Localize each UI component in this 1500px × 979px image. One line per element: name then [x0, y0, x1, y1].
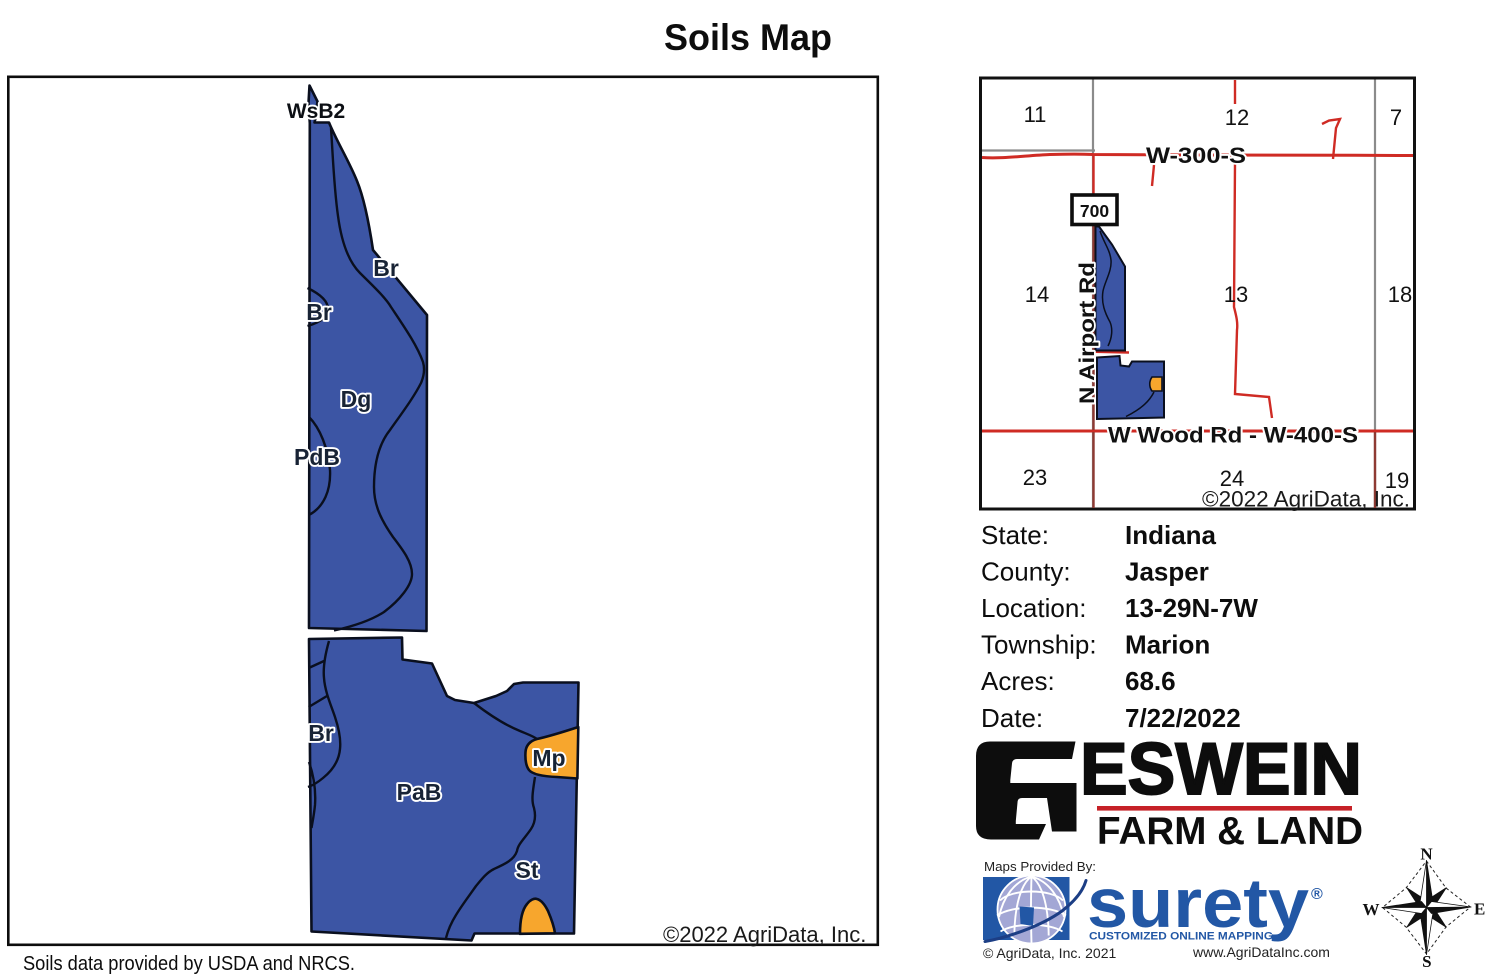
svg-text:Dg: Dg — [341, 386, 372, 412]
svg-text:WsB2: WsB2 — [287, 100, 345, 123]
svg-text:PdB: PdB — [294, 444, 340, 470]
svg-text:11: 11 — [1024, 102, 1047, 127]
svg-text:www.AgriDataInc.com: www.AgriDataInc.com — [1192, 944, 1330, 960]
svg-text:Br: Br — [308, 720, 334, 746]
svg-text:Acres:: Acres: — [981, 666, 1055, 696]
svg-text:E: E — [1474, 900, 1485, 919]
svg-text:7: 7 — [1390, 105, 1402, 130]
svg-text:N: N — [1420, 845, 1433, 864]
svg-text:14: 14 — [1025, 282, 1049, 307]
svg-text:St: St — [516, 857, 539, 883]
svg-text:Br: Br — [306, 299, 332, 325]
svg-text:18: 18 — [1388, 282, 1412, 307]
svg-text:Date:: Date: — [981, 703, 1043, 733]
svg-text:13-29N-7W: 13-29N-7W — [1125, 593, 1258, 623]
svg-text:© AgriData, Inc. 2021: © AgriData, Inc. 2021 — [983, 945, 1116, 961]
svg-text:12: 12 — [1225, 105, 1249, 130]
svg-text:ESWEIN: ESWEIN — [1080, 729, 1362, 810]
svg-text:Indiana: Indiana — [1125, 520, 1217, 550]
svg-text:®: ® — [1311, 886, 1323, 903]
svg-text:CUSTOMIZED ONLINE MAPPING: CUSTOMIZED ONLINE MAPPING — [1089, 931, 1273, 943]
svg-text:©2022 AgriData, Inc.: ©2022 AgriData, Inc. — [663, 922, 866, 947]
svg-text:68.6: 68.6 — [1125, 666, 1176, 696]
svg-text:Br: Br — [373, 255, 399, 281]
svg-text:PaB: PaB — [397, 779, 442, 805]
svg-text:Maps Provided By:: Maps Provided By: — [984, 860, 1096, 874]
svg-text:FARM & LAND: FARM & LAND — [1097, 810, 1363, 853]
svg-text:County:: County: — [981, 557, 1071, 587]
svg-text:W Wood Rd - W-400-S: W Wood Rd - W-400-S — [1108, 423, 1358, 448]
svg-text:Marion: Marion — [1125, 630, 1210, 660]
svg-text:13: 13 — [1224, 282, 1248, 307]
svg-text:Mp: Mp — [532, 745, 565, 771]
svg-text:Soils data provided by USDA an: Soils data provided by USDA and NRCS. — [23, 952, 355, 975]
svg-text:N Airport Rd: N Airport Rd — [1076, 262, 1099, 404]
svg-text:Township:: Township: — [981, 630, 1097, 660]
svg-text:W: W — [1363, 900, 1380, 919]
svg-text:700: 700 — [1080, 201, 1109, 221]
svg-text:©2022 AgriData, Inc.: ©2022 AgriData, Inc. — [1202, 487, 1410, 512]
svg-text:Location:: Location: — [981, 593, 1087, 623]
svg-text:23: 23 — [1023, 465, 1047, 490]
svg-text:Jasper: Jasper — [1125, 557, 1209, 587]
svg-text:W-300-S: W-300-S — [1146, 143, 1246, 168]
svg-text:Soils Map: Soils Map — [664, 17, 832, 58]
svg-text:S: S — [1422, 952, 1431, 971]
svg-text:State:: State: — [981, 520, 1049, 550]
